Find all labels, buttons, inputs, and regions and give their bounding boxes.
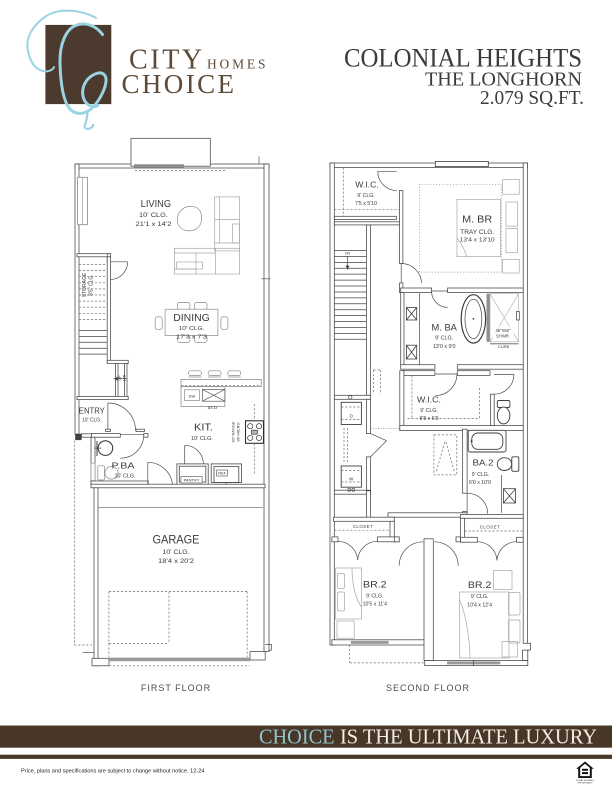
svg-text:10' CLG.: 10' CLG. — [114, 474, 135, 480]
svg-text:DW: DW — [189, 393, 196, 398]
svg-text:DINING: DINING — [173, 312, 210, 324]
svg-text:TRAY CLG.: TRAY CLG. — [460, 230, 494, 236]
svg-text:8'5" CLG.: 8'5" CLG. — [89, 274, 95, 295]
svg-text:15R: 15R — [123, 374, 127, 381]
svg-text:9' CLG.: 9' CLG. — [471, 594, 488, 600]
svg-text:10' CLG.: 10' CLG. — [82, 417, 102, 423]
svg-text:10'5 x 11'4: 10'5 x 11'4 — [363, 602, 387, 608]
svg-text:SHWR.: SHWR. — [496, 334, 510, 339]
svg-text:CHOICE: CHOICE — [122, 69, 237, 99]
svg-text:10' CLG.: 10' CLG. — [179, 326, 206, 332]
svg-text:UP: UP — [118, 375, 122, 381]
svg-text:DN: DN — [345, 252, 351, 256]
svg-text:10' CLG.: 10' CLG. — [163, 550, 190, 556]
svg-text:10' CLG.: 10' CLG. — [139, 213, 168, 219]
svg-text:Price, plans and specification: Price, plans and specifications are subj… — [21, 769, 204, 775]
svg-text:9' CLG.: 9' CLG. — [357, 193, 374, 199]
svg-text:10'4 x 12'4: 10'4 x 12'4 — [467, 602, 492, 608]
svg-text:BR.2: BR.2 — [363, 580, 387, 591]
svg-text:54 D: 54 D — [208, 405, 218, 410]
svg-text:9' CLG.: 9' CLG. — [366, 593, 383, 599]
svg-text:CLOSET: CLOSET — [353, 524, 374, 529]
svg-text:W/ MICRO: W/ MICRO — [236, 422, 241, 441]
svg-text:PANTRY: PANTRY — [184, 478, 200, 483]
svg-text:IS THE ULTIMATE LUXURY: IS THE ULTIMATE LUXURY — [340, 725, 597, 749]
svg-text:REF: REF — [218, 471, 227, 476]
svg-text:CURB: CURB — [498, 344, 510, 349]
svg-text:STORAGE: STORAGE — [82, 272, 88, 297]
svg-text:10' CLG.: 10' CLG. — [191, 436, 213, 442]
svg-text:SECOND FLOOR: SECOND FLOOR — [386, 683, 470, 693]
svg-text:M. BA: M. BA — [431, 322, 457, 333]
svg-text:W.I.C.: W.I.C. — [355, 181, 379, 190]
svg-text:9' CLG.: 9' CLG. — [420, 408, 437, 414]
svg-text:GARAGE: GARAGE — [153, 535, 200, 547]
svg-text:9' CLG.: 9' CLG. — [472, 472, 489, 478]
svg-text:KIT.: KIT. — [194, 423, 213, 434]
svg-text:BR.2: BR.2 — [468, 580, 492, 591]
svg-text:W.I.C.: W.I.C. — [417, 395, 441, 404]
svg-text:CHOICE: CHOICE — [259, 725, 335, 749]
svg-text:BA.2: BA.2 — [473, 457, 494, 467]
svg-text:9'8 x 6'0: 9'8 x 6'0 — [420, 416, 439, 422]
svg-text:7'5 x 5'10: 7'5 x 5'10 — [355, 201, 377, 207]
svg-text:M. BR: M. BR — [462, 215, 492, 226]
svg-text:P.BA: P.BA — [112, 460, 135, 470]
svg-text:LIVING: LIVING — [141, 198, 172, 210]
svg-text:ENTRY: ENTRY — [79, 407, 106, 416]
svg-text:13'0 x 9'0: 13'0 x 9'0 — [433, 344, 456, 350]
svg-text:13'4 x 13'10: 13'4 x 13'10 — [460, 238, 495, 244]
svg-text:18'4 x 20'2: 18'4 x 20'2 — [158, 559, 195, 565]
svg-text:FIRST FLOOR: FIRST FLOOR — [141, 683, 211, 693]
svg-text:CLOSET: CLOSET — [480, 524, 501, 529]
svg-text:36"X60": 36"X60" — [495, 328, 511, 333]
svg-text:9' CLG.: 9' CLG. — [435, 336, 453, 342]
svg-text:21'1 x 14'2: 21'1 x 14'2 — [136, 222, 173, 228]
svg-text:6'0 x 10'0: 6'0 x 10'0 — [469, 480, 491, 486]
svg-text:OPPORTUNITY: OPPORTUNITY — [578, 782, 594, 784]
svg-text:17'3 x 7'3: 17'3 x 7'3 — [176, 334, 207, 340]
svg-text:2.079 SQ.FT.: 2.079 SQ.FT. — [480, 87, 584, 109]
svg-text:W: W — [349, 477, 354, 482]
